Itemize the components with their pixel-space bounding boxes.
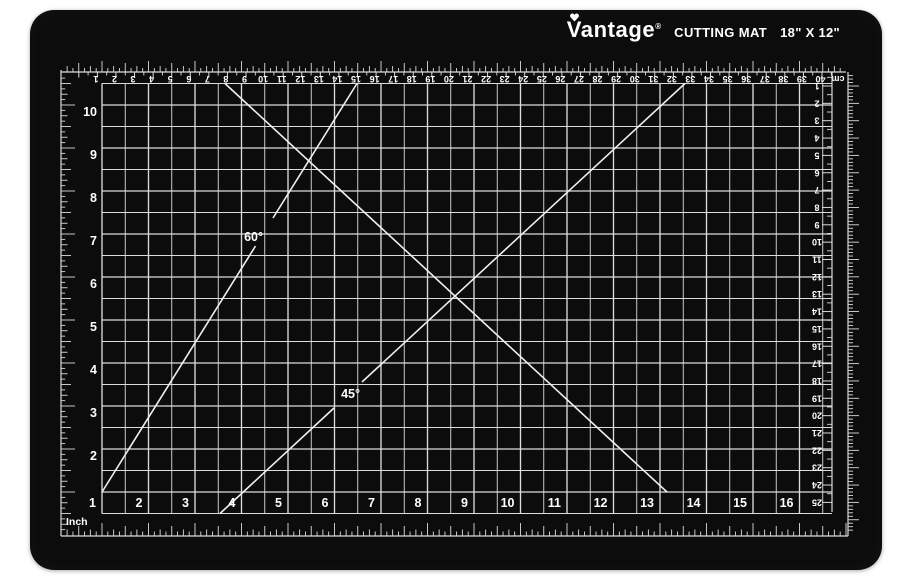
- top-cm-number: 27: [574, 74, 584, 84]
- right-cm-number: 5: [814, 150, 819, 160]
- left-inch-number: 9: [90, 148, 97, 162]
- bottom-inch-number: 15: [733, 496, 747, 510]
- top-cm-number: 1: [93, 74, 98, 84]
- top-cm-number: 12: [295, 74, 305, 84]
- top-cm-number: 23: [500, 74, 510, 84]
- top-cm-number: 25: [537, 74, 547, 84]
- top-cm-number: 8: [223, 74, 228, 84]
- top-cm-number: 13: [314, 74, 324, 84]
- product-name: CUTTING MAT: [674, 25, 767, 40]
- right-cm-number: 24: [812, 480, 822, 490]
- bottom-inch-number: 1: [89, 496, 96, 510]
- right-cm-number: 11: [812, 255, 822, 265]
- bottom-inch-number: 13: [640, 496, 654, 510]
- right-cm-number: 7: [814, 185, 819, 195]
- bottom-inch-number: 2: [136, 496, 143, 510]
- cutting-mat-grid-and-rulers: 4039383736353433323130292827262524232221…: [0, 0, 912, 584]
- bottom-inch-number: 5: [275, 496, 282, 510]
- right-cm-number: 3: [814, 116, 819, 126]
- top-cm-number: 39: [797, 74, 807, 84]
- top-cm-number: 17: [388, 74, 398, 84]
- left-inch-number: 5: [90, 320, 97, 334]
- right-cm-number: 17: [812, 359, 822, 369]
- right-cm-number: 16: [812, 341, 822, 351]
- bottom-inch-number: 8: [415, 496, 422, 510]
- bottom-inch-number: 16: [780, 496, 794, 510]
- left-inch-number: 7: [90, 234, 97, 248]
- top-cm-number: 38: [778, 74, 788, 84]
- right-cm-number: 2: [814, 98, 819, 108]
- top-cm-number: 28: [592, 74, 602, 84]
- right-cm-number: 8: [814, 203, 819, 213]
- bottom-inch-number: 10: [501, 496, 515, 510]
- right-cm-number: 23: [812, 463, 822, 473]
- top-cm-number: 21: [462, 74, 472, 84]
- right-cm-number: 14: [812, 307, 822, 317]
- top-cm-number: 6: [186, 74, 191, 84]
- top-cm-number: 29: [611, 74, 621, 84]
- right-cm-number: 22: [812, 445, 822, 455]
- right-cm-number: 25: [812, 497, 822, 507]
- right-cm-number: 4: [814, 133, 819, 143]
- top-cm-number: 2: [112, 74, 117, 84]
- right-cm-number: 6: [814, 168, 819, 178]
- right-cm-number: 18: [812, 376, 822, 386]
- top-cm-number: 16: [370, 74, 380, 84]
- registered-mark: ®: [655, 22, 661, 31]
- angle-45-label: 45°: [341, 387, 360, 401]
- top-cm-number: 31: [648, 74, 658, 84]
- diagonal-45-down-line: [225, 84, 667, 493]
- right-cm-number: 19: [812, 393, 822, 403]
- branding: Vantage® CUTTING MAT 18" X 12": [567, 17, 840, 43]
- top-cm-number: 34: [704, 74, 714, 84]
- bottom-inch-number: 4: [229, 496, 236, 510]
- bottom-inch-number: 14: [687, 496, 701, 510]
- left-inch-number: 10: [83, 105, 97, 119]
- top-cm-number: 9: [242, 74, 247, 84]
- right-cm-number: 21: [812, 428, 822, 438]
- right-cm-number: 12: [812, 272, 822, 282]
- product-photo-stage: 4039383736353433323130292827262524232221…: [0, 0, 912, 584]
- right-cm-number: 20: [812, 411, 822, 421]
- bottom-inch-number: 6: [322, 496, 329, 510]
- top-cm-number: 5: [168, 74, 173, 84]
- top-cm-number: 33: [685, 74, 695, 84]
- left-inch-number: 6: [90, 277, 97, 291]
- top-cm-number: 35: [723, 74, 733, 84]
- top-cm-number: 7: [205, 74, 210, 84]
- top-cm-number: 15: [351, 74, 361, 84]
- bottom-inch-number: 7: [368, 496, 375, 510]
- mat-dimensions: 18" X 12": [780, 25, 840, 40]
- logo-heart-mark-icon: [569, 13, 580, 22]
- bottom-inch-number: 9: [461, 496, 468, 510]
- bottom-inch-number: 3: [182, 496, 189, 510]
- top-cm-number: 4: [149, 74, 154, 84]
- right-cm-number: 13: [812, 289, 822, 299]
- top-cm-number: 18: [407, 74, 417, 84]
- diagonal-60-line: [273, 84, 357, 219]
- top-cm-number: 19: [425, 74, 435, 84]
- bottom-inch-number: 11: [548, 496, 561, 510]
- left-inch-number: 2: [90, 449, 97, 463]
- top-cm-number: 22: [481, 74, 491, 84]
- top-cm-number: 3: [130, 74, 135, 84]
- logo-text: Vantage: [567, 17, 656, 42]
- bottom-inch-number: 12: [594, 496, 608, 510]
- left-inch-number: 4: [90, 363, 97, 377]
- top-cm-number: 32: [667, 74, 677, 84]
- top-cm-number: 10: [258, 74, 268, 84]
- top-cm-number: 20: [444, 74, 454, 84]
- right-cm-number: 15: [812, 324, 822, 334]
- top-cm-number: 30: [630, 74, 640, 84]
- top-cm-number: 14: [332, 74, 342, 84]
- inch-unit-label: Inch: [66, 516, 88, 528]
- left-inch-number: 8: [90, 191, 97, 205]
- top-cm-number: 11: [277, 74, 287, 84]
- top-cm-number: 36: [741, 74, 751, 84]
- top-cm-unit-label: cm: [831, 74, 844, 84]
- left-inch-number: 3: [90, 406, 97, 420]
- right-cm-number: 10: [812, 237, 822, 247]
- top-cm-number: 24: [518, 74, 528, 84]
- angle-60-label: 60°: [244, 230, 263, 244]
- top-cm-number: 26: [555, 74, 565, 84]
- vantage-logo: Vantage®: [567, 17, 661, 43]
- right-cm-number: 9: [814, 220, 819, 230]
- right-cm-number: 1: [814, 81, 819, 91]
- top-cm-number: 37: [760, 74, 770, 84]
